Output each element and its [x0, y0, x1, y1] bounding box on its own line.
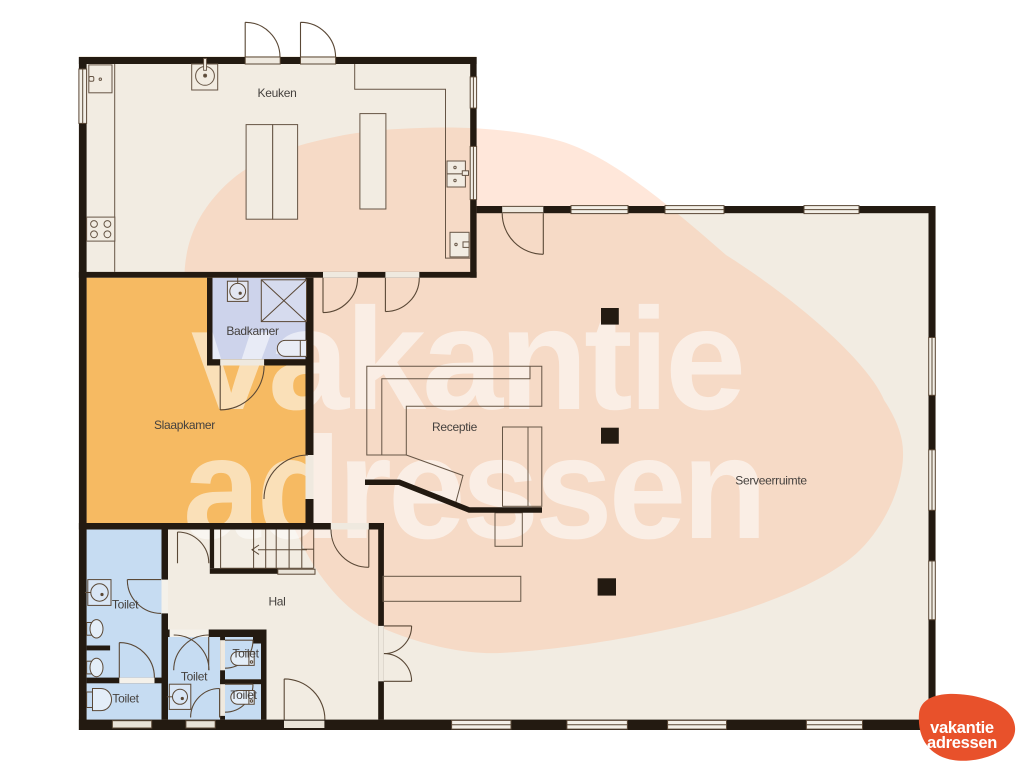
svg-text:adressen: adressen: [927, 734, 997, 752]
svg-text:Slaapkamer: Slaapkamer: [154, 418, 215, 432]
svg-text:Toilet: Toilet: [181, 670, 208, 684]
svg-text:Receptie: Receptie: [432, 420, 478, 434]
svg-text:Hal: Hal: [268, 595, 285, 609]
svg-text:Serveerruimte: Serveerruimte: [735, 474, 807, 488]
svg-text:Toilet: Toilet: [112, 598, 139, 612]
svg-text:Toilet: Toilet: [230, 688, 257, 702]
svg-text:Badkamer: Badkamer: [226, 324, 279, 338]
svg-text:Keuken: Keuken: [258, 86, 297, 100]
svg-text:Toilet: Toilet: [232, 647, 259, 661]
svg-text:Toilet: Toilet: [112, 692, 139, 706]
